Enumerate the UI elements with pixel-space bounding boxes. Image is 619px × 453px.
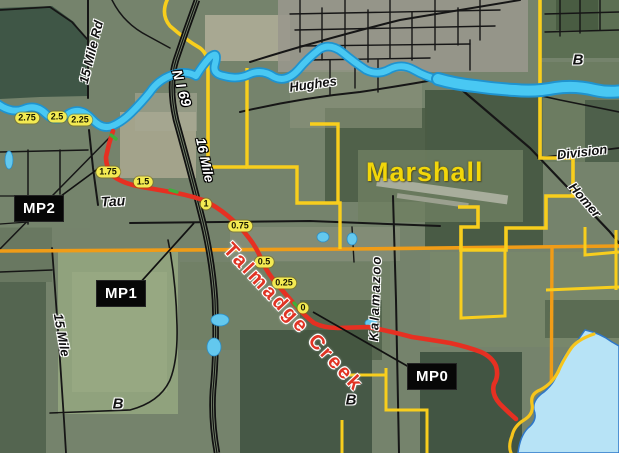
- mp0-callout-box: MP0: [407, 363, 457, 390]
- milepost-marker-1.75: 1.75: [96, 167, 120, 178]
- mp2-callout-box: MP2: [14, 195, 64, 222]
- mp1-callout-box: MP1: [96, 280, 146, 307]
- road-label-kalamazoo: Kalamazoo: [366, 254, 384, 341]
- township-label-b-south-central: B: [346, 392, 357, 409]
- township-label-b-southwest: B: [113, 396, 124, 413]
- city-label-marshall: Marshall: [366, 157, 484, 188]
- milepost-marker-1.5: 1.5: [134, 177, 153, 188]
- milepost-marker-2.25: 2.25: [68, 115, 92, 126]
- milepost-marker-2.75: 2.75: [15, 113, 39, 124]
- area-label-tau: Tau: [100, 192, 125, 209]
- milepost-marker-1: 1: [200, 199, 211, 210]
- milepost-marker-2.5: 2.5: [48, 112, 67, 123]
- aerial-map-canvas: 2.75 2.5 2.25 1.75 1.5 1 0.75 0.5 0.25 0…: [0, 0, 619, 453]
- township-label-b-northeast: B: [573, 52, 584, 69]
- milepost-marker-0.75: 0.75: [228, 221, 252, 232]
